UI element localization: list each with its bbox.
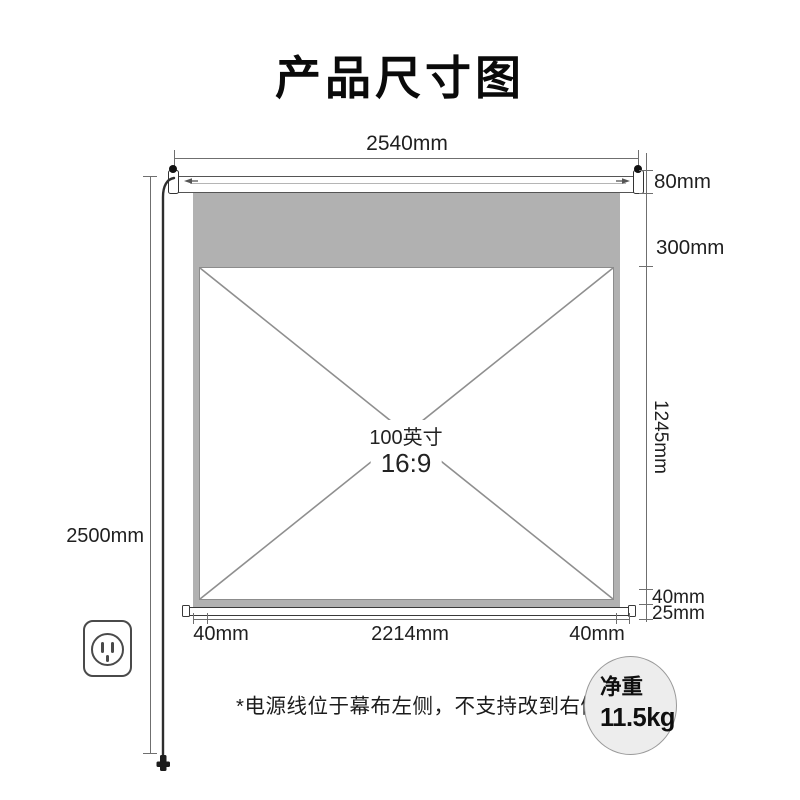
aspect-ratio-label: 16:9 [371, 448, 442, 479]
dim-line-total-height [150, 177, 151, 754]
dim-label-bottom-bar: 25mm [652, 603, 705, 625]
dim-tick [639, 266, 653, 267]
power-plug-icon [157, 755, 171, 771]
dim-line-bottom-width [193, 619, 630, 620]
dim-tick [174, 150, 175, 166]
dim-label-side-border-left: 40mm [193, 623, 249, 646]
dim-label-side-border-right: 40mm [569, 623, 625, 646]
dim-tick [639, 604, 653, 605]
right-border-strip [614, 267, 620, 608]
dim-tick [639, 619, 653, 620]
top-black-drop [193, 193, 620, 267]
power-cord [163, 178, 174, 757]
bottom-weight-bar [186, 607, 631, 616]
outlet-slot [101, 642, 104, 653]
outlet-ground-pin [106, 655, 109, 662]
hanging-bracket-icon [168, 170, 179, 194]
dim-line-top-width [175, 158, 639, 159]
dim-tick [639, 193, 653, 194]
dim-label-viewing-width: 2214mm [371, 623, 449, 646]
dim-tick [639, 170, 653, 171]
page-title: 产品尺寸图 [275, 42, 525, 108]
wall-outlet-icon [83, 620, 132, 677]
bar-end-cap [182, 605, 190, 617]
power-cord-footnote: *电源线位于幕布左侧，不支持改到右侧 [236, 689, 601, 719]
dim-label-viewing-height: 1245mm [649, 400, 671, 474]
outlet-face [91, 633, 124, 666]
screen-size-label: 100英寸 [361, 420, 450, 451]
dim-line-right-chain [646, 153, 647, 622]
screen-casing [177, 176, 637, 193]
casing-seam [190, 183, 626, 184]
dim-label-total-height: 2500mm [60, 525, 144, 548]
outlet-slot [111, 642, 114, 653]
net-weight-value: 11.5kg [600, 702, 675, 735]
dim-label-case-height: 80mm [654, 170, 711, 194]
dim-tick [639, 589, 653, 590]
hanging-bracket-icon [633, 170, 644, 194]
dim-tick [143, 176, 157, 177]
bracket-ring-icon [634, 165, 642, 173]
dim-tick [629, 613, 630, 624]
dim-tick [638, 150, 639, 166]
dim-tick [143, 753, 157, 754]
product-dimension-diagram: 产品尺寸图 2540mm 2500mm 100英寸 16:9 [0, 0, 800, 800]
dim-label-top-black-border: 300mm [656, 236, 724, 260]
dim-label-top-width: 2540mm [366, 132, 448, 156]
net-weight-badge: 净重 11.5kg [584, 656, 677, 755]
net-weight-label: 净重 [600, 674, 675, 702]
bracket-ring-icon [169, 165, 177, 173]
